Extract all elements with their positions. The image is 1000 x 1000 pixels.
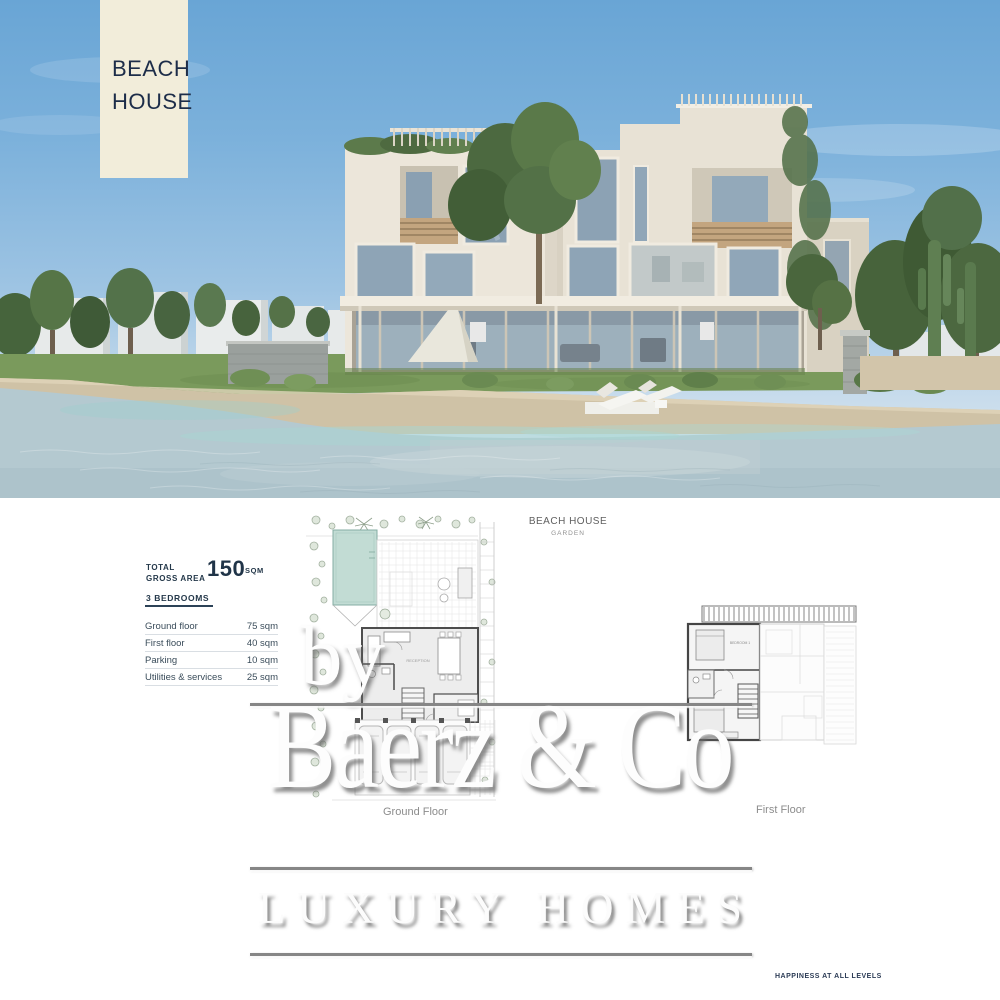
watermark-rule-middle [250,867,752,870]
plan-title: BEACH HOUSE [498,516,638,527]
table-row: Ground floor 75 sqm [145,618,278,635]
first-floor-label: First Floor [756,804,806,816]
watermark-tagline: LUXURY HOMES [0,886,1000,931]
pool [333,530,377,626]
deck [377,540,478,630]
ground-floor-label: Ground Floor [383,806,448,818]
adjacent-unit-ghost [760,624,856,744]
total-area-value: 150 [207,556,245,582]
bedrooms-underline [145,605,213,607]
total-area-unit: SQM [245,566,264,575]
banner-title: BEACH HOUSE [112,52,193,118]
watermark-rule-bottom [250,953,752,956]
room-label: RECEPTION [406,658,429,663]
plan-subtitle: GARDEN [498,530,638,537]
row-value: 25 sqm [247,672,278,683]
pergola-slats [702,606,856,622]
table-row: First floor 40 sqm [145,635,278,652]
bedrooms-label: 3 BEDROOMS [146,593,209,603]
row-label: Parking [145,655,177,666]
row-label: Ground floor [145,621,198,632]
row-label: First floor [145,638,185,649]
table-row: Parking 10 sqm [145,652,278,669]
area-breakdown-table: Ground floor 75 sqm First floor 40 sqm P… [145,618,278,686]
page: BEACH HOUSE TOTAL GROSS AREA 150 SQM 3 B… [0,0,1000,1000]
ground-floor-plan: RECEPTION [306,512,521,804]
row-value: 10 sqm [247,655,278,666]
row-value: 40 sqm [247,638,278,649]
row-label: Utilities & services [145,672,222,683]
banner-line1: BEACH [112,52,193,85]
footer-tagline: HAPPINESS AT ALL LEVELS [775,973,882,980]
first-floor-plan: BEDROOM 1 [686,596,864,750]
interior-rooms: RECEPTION [362,628,478,722]
room-label: BEDROOM 1 [730,641,750,645]
table-row: Utilities & services 25 sqm [145,669,278,686]
total-gross-area-label: TOTAL GROSS AREA [146,562,206,584]
row-value: 75 sqm [247,621,278,632]
plan-title-block: BEACH HOUSE GARDEN [498,516,638,537]
path-tiles [470,720,495,795]
parking [332,718,496,800]
banner-line2: HOUSE [112,85,193,118]
first-floor-unit: BEDROOM 1 [688,624,760,740]
main-building [340,94,869,375]
